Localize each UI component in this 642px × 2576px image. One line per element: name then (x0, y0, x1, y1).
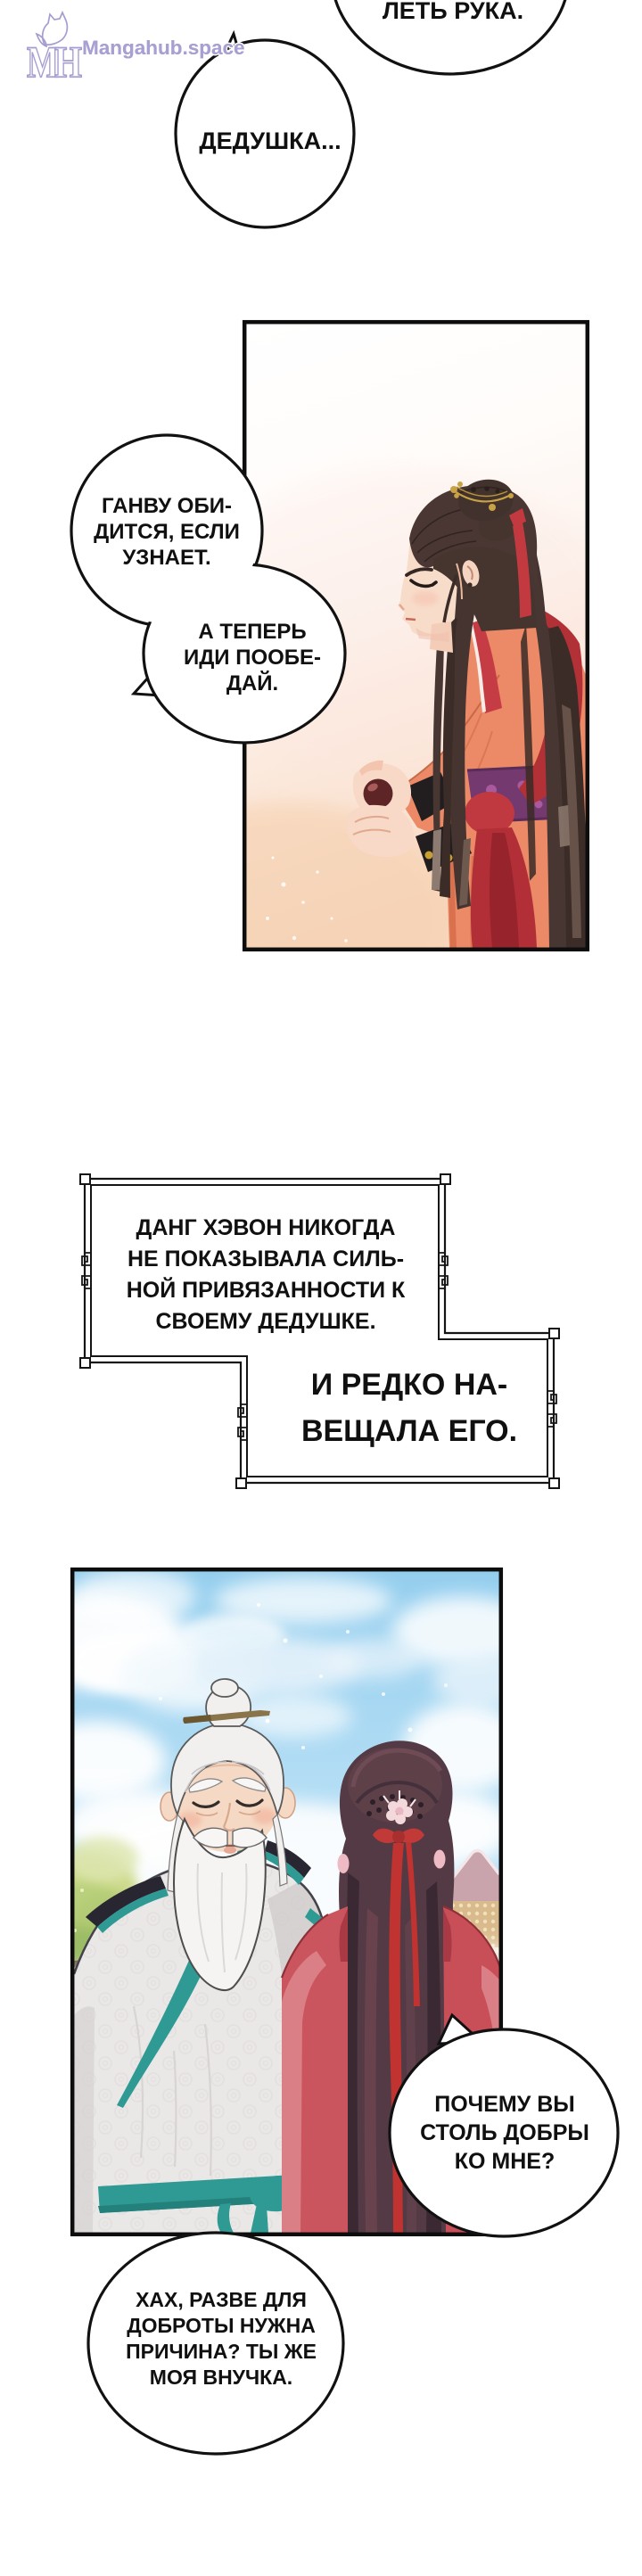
svg-text:ДАЙ.: ДАЙ. (226, 671, 278, 695)
svg-text:А ТЕПЕРЬ: А ТЕПЕРЬ (198, 620, 306, 644)
svg-text:ДИТСЯ, ЕСЛИ: ДИТСЯ, ЕСЛИ (94, 520, 240, 544)
svg-text:МОЯ ВНУЧКА.: МОЯ ВНУЧКА. (150, 2366, 292, 2389)
svg-text:НОЙ ПРИВЯЗАННОСТИ К: НОЙ ПРИВЯЗАННОСТИ К (127, 1276, 406, 1303)
svg-text:ДАНГ ХЭВОН НИКОГДА: ДАНГ ХЭВОН НИКОГДА (136, 1215, 396, 1240)
svg-text:ВЕЩАЛА ЕГО.: ВЕЩАЛА ЕГО. (301, 1414, 517, 1448)
svg-text:КО МНЕ?: КО МНЕ? (455, 2149, 555, 2174)
svg-text:ХАХ, РАЗВЕ ДЛЯ: ХАХ, РАЗВЕ ДЛЯ (136, 2288, 307, 2311)
svg-text:СВОЕМУ ДЕДУШКЕ.: СВОЕМУ ДЕДУШКЕ. (155, 1309, 375, 1334)
svg-text:Mangahub.space: Mangahub.space (82, 37, 245, 59)
svg-text:НЕ ПОКАЗЫВАЛА СИЛЬ-: НЕ ПОКАЗЫВАЛА СИЛЬ- (128, 1247, 404, 1272)
svg-text:ДОБРОТЫ НУЖНА: ДОБРОТЫ НУЖНА (127, 2314, 316, 2337)
svg-text:ГАНВУ ОБИ-: ГАНВУ ОБИ- (102, 494, 232, 518)
svg-text:СТОЛЬ ДОБРЫ: СТОЛЬ ДОБРЫ (420, 2120, 589, 2145)
svg-text:H: H (54, 37, 82, 86)
svg-text:И РЕДКО НА-: И РЕДКО НА- (311, 1368, 508, 1402)
svg-text:ДЕДУШКА...: ДЕДУШКА... (199, 128, 341, 154)
svg-text:ПОЧЕМУ ВЫ: ПОЧЕМУ ВЫ (434, 2092, 575, 2117)
svg-text:ИДИ ПООБЕ-: ИДИ ПООБЕ- (184, 646, 321, 670)
svg-text:ЛЕТЬ РУКА.: ЛЕТЬ РУКА. (383, 0, 523, 24)
svg-text:ПРИЧИНА? ТЫ ЖЕ: ПРИЧИНА? ТЫ ЖЕ (126, 2340, 317, 2363)
svg-text:УЗНАЕТ.: УЗНАЕТ. (122, 546, 210, 570)
